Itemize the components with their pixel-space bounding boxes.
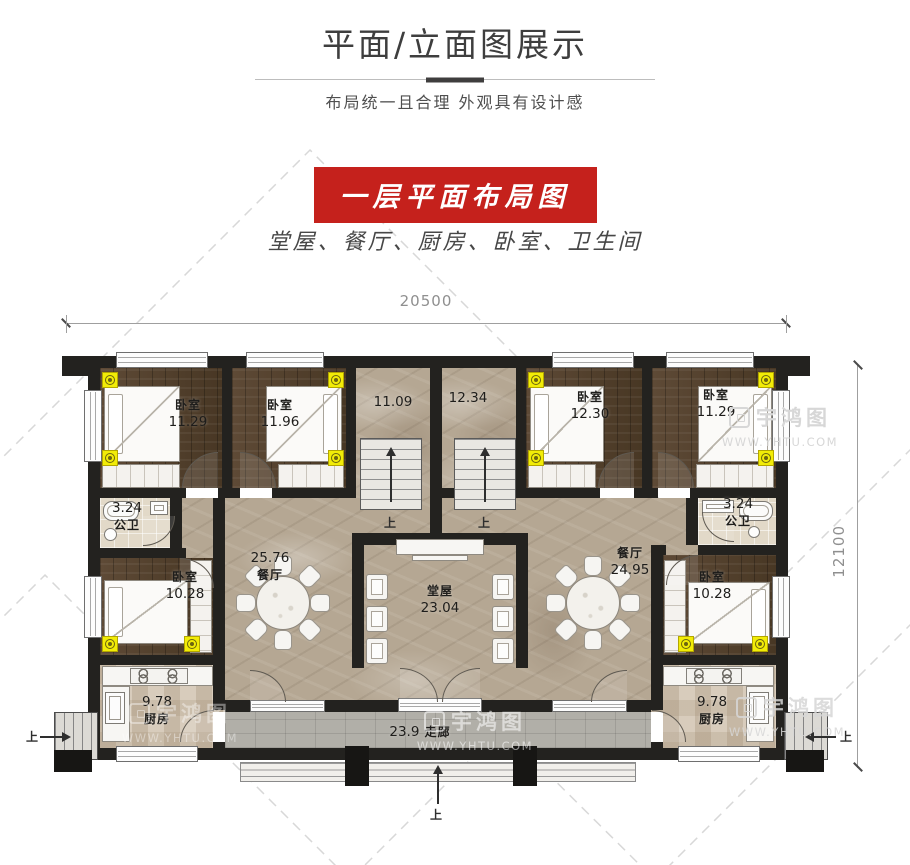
divider-accent [426, 77, 484, 82]
title-divider [255, 79, 655, 80]
room-area: 11.29 [680, 404, 752, 422]
dining-chair [310, 594, 330, 612]
stove [686, 668, 742, 684]
room-name: 卧室 [150, 570, 220, 586]
wall-corner-nub-left [62, 356, 88, 376]
closet [102, 464, 180, 488]
hall-chair [492, 574, 514, 600]
wall-int [686, 498, 698, 545]
wall-int [516, 368, 526, 488]
wall-mainhall-right [516, 545, 528, 668]
room-area: 10.28 [150, 586, 220, 604]
window [552, 352, 634, 368]
room-name: 卧室 [680, 388, 752, 404]
dining-chair [236, 594, 256, 612]
room-area: 25.76 [234, 550, 306, 568]
dim-guide [66, 315, 67, 333]
room-name: 厨房 [676, 712, 748, 728]
window [666, 352, 754, 368]
floor-plan: 20500 12100 [0, 290, 910, 865]
room-area: 3.24 [95, 500, 159, 518]
hall-chair [492, 606, 514, 632]
room-name: 公卫 [706, 514, 770, 530]
corner-marker-icon [678, 636, 694, 652]
hall-chair [366, 638, 388, 664]
label-main-hall: 堂屋 23.04 [404, 584, 476, 617]
stove [130, 668, 188, 684]
dimension-right-label: 12100 [830, 525, 848, 578]
room-name: 餐厅 [592, 546, 668, 562]
corner-marker-icon [328, 450, 344, 466]
window [772, 390, 790, 462]
room-area: 11.96 [244, 414, 316, 432]
corner-marker-icon [328, 372, 344, 388]
room-area: 10.28 [677, 586, 747, 604]
side-stair-arrow-icon [808, 736, 836, 738]
section-banner: 一层平面布局图 [314, 167, 597, 223]
window [116, 746, 198, 762]
room-name: 厨房 [122, 712, 192, 728]
corner-marker-icon [102, 636, 118, 652]
dining-chair [546, 594, 566, 612]
entry-up-arrow-icon [437, 768, 439, 804]
room-area: 12.34 [430, 390, 506, 408]
wall-int [651, 655, 776, 665]
room-name: 公卫 [95, 518, 159, 534]
room-area: 11.29 [152, 414, 224, 432]
label-bedroom-tl1: 卧室 11.29 [152, 398, 224, 431]
wall-int [634, 488, 658, 498]
round-table [256, 576, 310, 630]
wall-corridor [325, 700, 400, 712]
dining-chair [584, 630, 602, 650]
porch-column [345, 746, 369, 786]
dim-guide [786, 315, 787, 333]
room-area: 3.24 [706, 496, 770, 514]
corner-marker-icon [752, 636, 768, 652]
stair-up-arrow-icon [484, 450, 486, 502]
up-label: 上 [384, 514, 396, 531]
room-list: 堂屋、餐厅、厨房、卧室、卫生间 [0, 224, 910, 256]
up-label: 上 [26, 728, 38, 745]
up-label: 上 [478, 514, 490, 531]
room-name: 走廊 [425, 725, 451, 739]
closet [528, 464, 596, 488]
dining-chair [274, 630, 292, 650]
dimension-top-label: 20500 [66, 292, 786, 310]
room-name: 堂屋 [404, 584, 476, 600]
wall-corridor [627, 700, 651, 712]
label-stairhall-left: 11.09 [355, 394, 431, 412]
hall-chair [492, 638, 514, 664]
room-area: 9.78 [122, 694, 192, 712]
label-dining-left: 25.76 餐厅 [234, 550, 306, 583]
wall-int [651, 665, 663, 710]
label-bedroom-tl2: 卧室 11.96 [244, 398, 316, 431]
stair-up-arrow-icon [390, 450, 392, 502]
wall-int [346, 368, 356, 488]
room-area: 24.95 [592, 562, 668, 580]
label-corridor: 23.9 走廊 [350, 724, 490, 742]
wall-int [100, 655, 213, 665]
window [84, 390, 102, 462]
wall-int [651, 742, 663, 760]
wall-int [272, 488, 356, 498]
room-name: 卧室 [677, 570, 747, 586]
room-name: 卧室 [152, 398, 224, 414]
room-area: 9.78 [676, 694, 748, 712]
label-bedroom-mid-right: 卧室 10.28 [677, 570, 747, 603]
room-area: 23.04 [404, 600, 476, 618]
hall-chair [366, 574, 388, 600]
room-area: 23.9 [389, 724, 419, 740]
kitchen-sink [749, 692, 769, 724]
window [84, 576, 102, 638]
corner-marker-icon [758, 450, 774, 466]
closet [696, 464, 774, 488]
up-label: 上 [840, 728, 852, 745]
label-kitchen-right: 9.78 厨房 [676, 694, 748, 727]
wall-corridor [480, 700, 552, 712]
closet [278, 464, 344, 488]
dimension-right-line [857, 365, 858, 768]
porch-column [513, 746, 537, 786]
label-bath-left: 3.24 公卫 [95, 500, 159, 533]
corner-marker-icon [528, 450, 544, 466]
page-title: 平面/立面图展示 [0, 18, 910, 66]
wall-mainhall-left [352, 545, 364, 668]
round-table [566, 576, 620, 630]
label-bath-right: 3.24 公卫 [706, 496, 770, 529]
label-stairhall-right: 12.34 [430, 390, 506, 408]
wall-int [698, 545, 776, 555]
wall-int [213, 498, 225, 710]
room-area: 12.30 [554, 406, 626, 424]
header: 平面/立面图展示 布局统一且合理 外观具有设计感 [0, 0, 910, 113]
wall-int [100, 488, 186, 498]
label-dining-right: 餐厅 24.95 [592, 546, 668, 579]
dining-chair [620, 594, 640, 612]
wall-corner-nub-right [788, 356, 810, 376]
altar-table-step [412, 555, 468, 561]
wall-int [218, 488, 240, 498]
up-label: 上 [430, 806, 442, 823]
room-name: 餐厅 [234, 568, 306, 584]
dimension-top-line [66, 323, 786, 324]
window [772, 576, 790, 638]
wall-corridor [225, 700, 250, 712]
side-stair-arrow-icon [40, 736, 68, 738]
section-banner-wrap: 一层平面布局图 [0, 167, 910, 223]
window [116, 352, 208, 368]
room-area: 11.09 [355, 394, 431, 412]
wall-int [100, 548, 186, 558]
room-name: 卧室 [554, 390, 626, 406]
corner-marker-icon [528, 372, 544, 388]
wall-int [213, 742, 225, 760]
corner-marker-icon [102, 372, 118, 388]
hall-chair [366, 606, 388, 632]
label-bedroom-mid-left: 卧室 10.28 [150, 570, 220, 603]
corner-block [786, 750, 824, 772]
window [246, 352, 324, 368]
page-subtitle: 布局统一且合理 外观具有设计感 [0, 89, 910, 113]
window [678, 746, 760, 762]
altar-table [396, 539, 484, 555]
label-bedroom-tr2: 卧室 11.29 [680, 388, 752, 421]
corner-block [54, 750, 92, 772]
label-kitchen-left: 9.78 厨房 [122, 694, 192, 727]
promo-page: 平面/立面图展示 布局统一且合理 外观具有设计感 一层平面布局图 堂屋、餐厅、厨… [0, 0, 910, 865]
wall-int [642, 368, 652, 488]
room-name: 卧室 [244, 398, 316, 414]
corner-marker-icon [184, 636, 200, 652]
label-bedroom-tr1: 卧室 12.30 [554, 390, 626, 423]
corner-marker-icon [102, 450, 118, 466]
corner-marker-icon [758, 372, 774, 388]
